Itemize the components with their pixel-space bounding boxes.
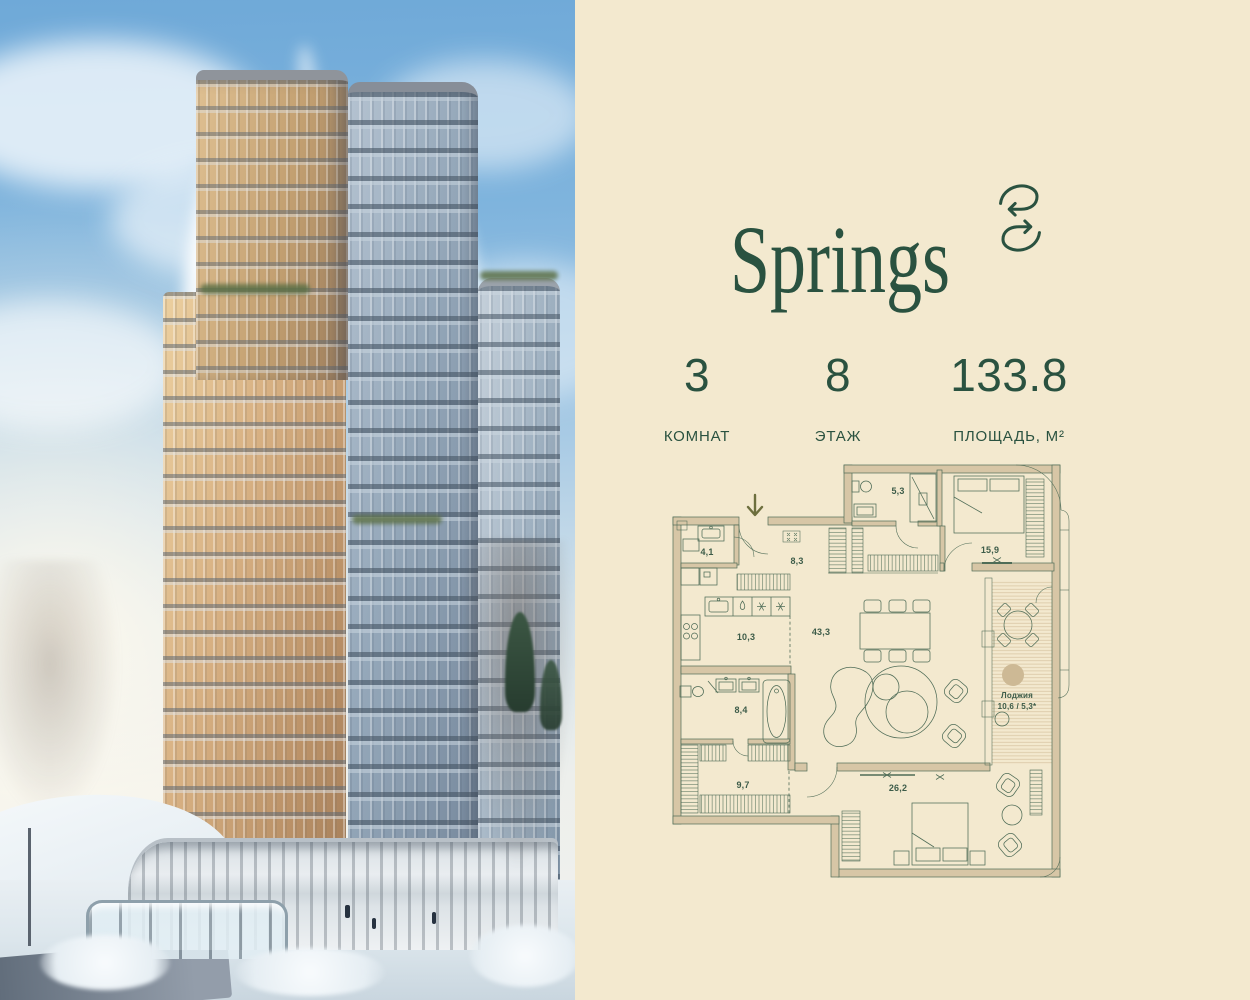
room-area-label: 10,3 <box>737 632 755 642</box>
living-dining-furniture <box>824 600 970 780</box>
brand-swirl-arrows-icon <box>988 183 1052 253</box>
pedestrian <box>345 905 350 918</box>
snow-mound <box>235 948 385 996</box>
tower-right-face <box>348 82 478 882</box>
stat-area-value: 133.8 <box>899 352 1119 398</box>
lamp-post <box>28 828 31 946</box>
roof-terrace-greenery <box>200 284 310 294</box>
room-area-label: 8,4 <box>734 705 747 715</box>
floor-plan: 4,1 8,3 5,3 15,9 10,3 43,3 8,4 9,7 26,2 … <box>660 455 1080 915</box>
pedestrian <box>372 918 376 929</box>
bathroom-small-fixtures <box>852 474 936 522</box>
tower-top-block <box>196 70 348 380</box>
loggia-plant <box>1002 664 1024 686</box>
room-area-label: 26,2 <box>889 783 907 793</box>
loggia-area-label: 10,6 / 5,3* <box>998 702 1037 711</box>
room-area-label: 8,3 <box>790 556 803 566</box>
room-area-label: 43,3 <box>812 627 830 637</box>
doormat <box>783 531 800 542</box>
pedestrian <box>432 912 436 924</box>
loggia-name-label: Лоджия <box>1001 691 1033 700</box>
room-area-label: 9,7 <box>736 780 749 790</box>
bare-trees-left <box>0 560 120 820</box>
brand-logo-text: Springs <box>730 212 950 308</box>
bedroom-second-furniture <box>894 771 1024 865</box>
roof-terrace-greenery <box>352 515 442 524</box>
stat-area: 133.8 ПЛОЩАДЬ, М² <box>899 352 1119 445</box>
apartment-card-panel: Springs 3 КОМНАТ 8 ЭТАЖ 133.8 ПЛОЩАДЬ, М… <box>575 0 1250 1000</box>
building-photo <box>0 0 575 1000</box>
snow-mound <box>470 925 575 987</box>
snow-mound <box>40 935 170 990</box>
room-area-label: 4,1 <box>700 547 713 557</box>
stat-area-label: ПЛОЩАДЬ, М² <box>899 428 1119 445</box>
entry-arrow-icon <box>748 495 762 515</box>
roof-terrace-greenery <box>480 271 558 280</box>
room-area-label: 5,3 <box>891 486 904 496</box>
room-area-label: 15,9 <box>981 545 999 555</box>
